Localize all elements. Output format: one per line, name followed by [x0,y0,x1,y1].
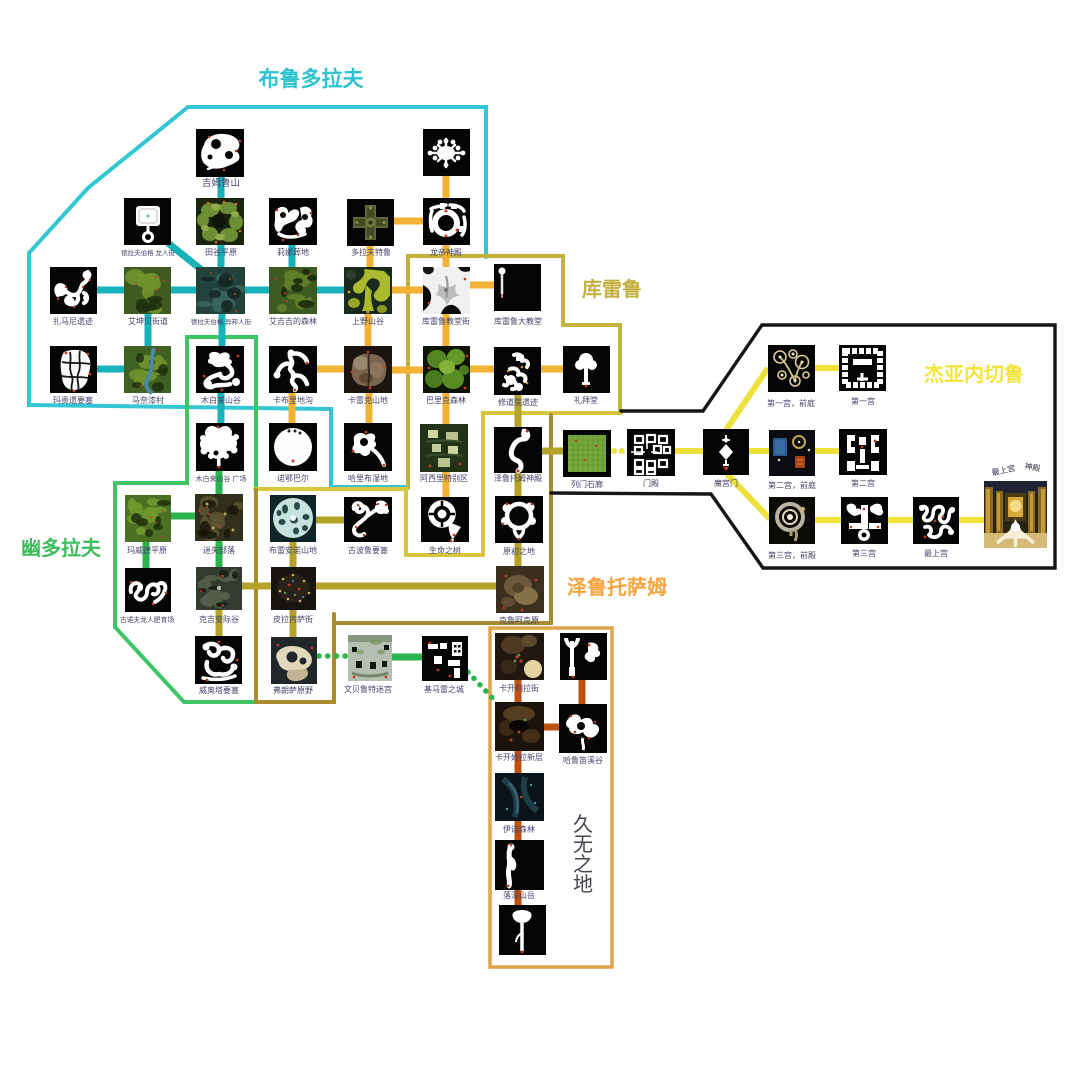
svg-text:礼拜堂: 礼拜堂 [574,395,598,405]
svg-text:多拉夫特鲁: 多拉夫特鲁 [351,247,391,257]
svg-text:文贝鲁特迷宫: 文贝鲁特迷宫 [344,684,392,694]
svg-text:木白来山谷: 木白来山谷 [201,395,241,405]
svg-text:库雷鲁大教堂: 库雷鲁大教堂 [494,316,542,326]
svg-text:魔宫门: 魔宫门 [714,478,738,488]
svg-text:德拉夫伯格 异邦人街: 德拉夫伯格 异邦人街 [191,317,252,326]
svg-text:泽鲁托萨姆: 泽鲁托萨姆 [567,575,667,599]
svg-text:艾吉吉的森林: 艾吉吉的森林 [269,316,317,326]
svg-text:威奥塔要塞: 威奥塔要塞 [199,685,239,695]
svg-text:上野山谷: 上野山谷 [352,316,384,326]
svg-text:古诺夫龙人肥育场: 古诺夫龙人肥育场 [120,615,175,624]
svg-text:原初之地: 原初之地 [503,546,535,556]
svg-text:基马雷之城: 基马雷之城 [424,684,464,694]
svg-text:古波鲁要塞: 古波鲁要塞 [348,545,388,555]
svg-text:扎马尼遗迹: 扎马尼遗迹 [53,316,93,326]
svg-text:列门石廊: 列门石廊 [571,479,603,489]
svg-text:马奈漆村: 马奈漆村 [132,395,164,405]
svg-text:弗朗萨原野: 弗朗萨原野 [273,685,313,695]
svg-text:布鲁多拉夫: 布鲁多拉夫 [259,67,365,91]
svg-text:克鲁阿克原: 克鲁阿克原 [499,615,539,625]
svg-text:布雷安诺山地: 布雷安诺山地 [269,545,317,555]
svg-text:第二宫，前庭: 第二宫，前庭 [768,480,816,490]
svg-text:门殿: 门殿 [643,478,659,488]
svg-text:田谷平原: 田谷平原 [205,248,237,257]
svg-text:幽多拉夫: 幽多拉夫 [21,536,102,560]
svg-text:第三宫，前殿: 第三宫，前殿 [768,550,816,560]
svg-text:莉娜葬地: 莉娜葬地 [277,247,309,257]
svg-text:龙帝神殿: 龙帝神殿 [430,247,462,257]
svg-text:哈鲁笛溪谷: 哈鲁笛溪谷 [563,755,603,765]
svg-text:久: 久 [573,813,593,836]
svg-text:巴里克森林: 巴里克森林 [426,395,466,405]
svg-text:伊诺森林: 伊诺森林 [503,824,535,834]
svg-text:卡开利拉街: 卡开利拉街 [499,683,539,693]
svg-text:生命之树: 生命之树 [429,545,461,555]
svg-text:玛威德平原: 玛威德平原 [127,545,167,555]
svg-text:第二宫: 第二宫 [851,478,875,488]
svg-text:库雷鲁教堂街: 库雷鲁教堂街 [422,316,470,326]
svg-text:之: 之 [573,853,593,876]
svg-text:迷失部落: 迷失部落 [203,545,235,555]
svg-text:皮拉内萨街: 皮拉内萨街 [273,614,313,624]
svg-text:吉姆鲁山: 吉姆鲁山 [202,177,240,189]
svg-text:第一宫: 第一宫 [851,396,875,406]
svg-text:第一宫，前庭: 第一宫，前庭 [767,398,815,408]
svg-text:卡雷克山地: 卡雷克山地 [348,395,388,405]
svg-text:无: 无 [573,834,593,856]
svg-text:落深山岳: 落深山岳 [503,890,535,900]
svg-text:德拉夫伯格 龙人街: 德拉夫伯格 龙人街 [121,248,175,257]
svg-text:库雷鲁: 库雷鲁 [582,277,642,301]
svg-text:卡开姆拉新层: 卡开姆拉新层 [495,752,543,762]
svg-text:阿西里特别区: 阿西里特别区 [420,473,468,483]
svg-text:杰亚内切鲁: 杰亚内切鲁 [924,362,1024,386]
svg-text:哈里布湿地: 哈里布湿地 [348,473,388,483]
svg-text:艾坤贝街道: 艾坤贝街道 [128,316,168,326]
svg-text:卡布里地沟: 卡布里地沟 [273,395,313,405]
svg-text:修道院遗迹: 修道院遗迹 [498,397,538,407]
svg-text:最上宫: 最上宫 [991,463,1017,478]
svg-text:克吉变际谷: 克吉变际谷 [199,614,239,624]
svg-text:神殿: 神殿 [1024,461,1041,474]
svg-text:玛贵遗要塞: 玛贵遗要塞 [53,395,93,405]
svg-text:诺鄂巴尔: 诺鄂巴尔 [277,473,309,483]
svg-text:最上宫: 最上宫 [924,548,948,558]
svg-text:地: 地 [573,873,593,896]
svg-text:木白来山谷 广场: 木白来山谷 广场 [196,474,247,483]
svg-text:第三宫: 第三宫 [852,548,876,558]
svg-text:泽鲁托姆神殿: 泽鲁托姆神殿 [494,473,542,483]
